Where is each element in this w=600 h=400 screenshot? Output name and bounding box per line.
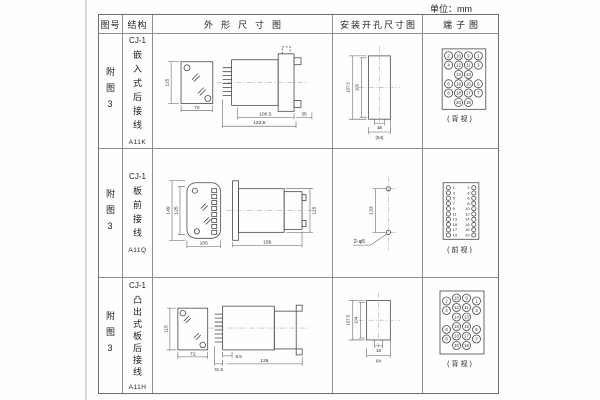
svg-text:12: 12 <box>454 305 459 310</box>
page-edge-line <box>85 0 87 400</box>
model-label: CJ-1 <box>129 281 146 290</box>
structure-cell-row1: CJ-1 嵌入式后接线 A11K <box>123 34 153 149</box>
svg-text:8: 8 <box>445 337 448 342</box>
svg-text:10: 10 <box>456 53 461 58</box>
dimension-label: 105 <box>200 240 209 246</box>
outline-drawing-row1: 115 72 100.5 35 <box>153 34 333 149</box>
install-drawing-svg-row2: 133 2-φ5 <box>333 149 422 277</box>
dimension-label: 125 <box>174 206 180 215</box>
front-view-dimensions: 115 72 <box>165 62 213 113</box>
dimension-label: 104 <box>354 316 359 324</box>
svg-text:5: 5 <box>475 327 478 332</box>
svg-text:11: 11 <box>453 211 457 216</box>
outline-drawing-svg-row2: 149 125 105 156 115 <box>153 149 332 277</box>
dimension-label: 72 <box>190 351 196 357</box>
dimension-label: 105 <box>355 83 360 91</box>
svg-text:4: 4 <box>445 308 448 313</box>
header-fig-no: 图号 <box>99 15 123 34</box>
svg-text:7: 7 <box>477 91 480 96</box>
svg-text:13: 13 <box>466 72 471 77</box>
install-drawing-svg-row1: 107.5 105 16 (64) <box>333 34 422 148</box>
install-drawing-row3: 107.5 104 16 64 <box>333 278 423 393</box>
front-view <box>178 308 208 350</box>
dimension-label: 133 <box>369 206 375 214</box>
terminal-circles: 2109141211314136161558181772019 <box>445 52 483 107</box>
fig-no-cell-row2: 附图3 <box>99 149 123 278</box>
svg-text:19: 19 <box>466 100 471 105</box>
svg-text:3: 3 <box>453 190 456 195</box>
dimension-label: 156 <box>263 239 272 245</box>
svg-text:3: 3 <box>475 308 478 313</box>
hole-size-label: 2-φ5 <box>354 239 365 245</box>
fig-no-cell-row3: 附图3 <box>99 278 123 393</box>
terminal-circles: 1357911131517192468101214161820 <box>446 185 476 237</box>
svg-text:12: 12 <box>456 63 461 68</box>
dimension-label: (64) <box>376 135 384 140</box>
svg-text:13: 13 <box>453 217 458 222</box>
view-label: (背视) <box>423 114 498 124</box>
svg-text:9: 9 <box>465 296 468 301</box>
svg-text:14: 14 <box>454 315 459 320</box>
svg-text:2: 2 <box>467 185 469 190</box>
front-view <box>187 183 221 239</box>
svg-text:20: 20 <box>456 100 461 105</box>
front-view <box>181 62 213 104</box>
svg-text:6: 6 <box>467 196 470 201</box>
header-install-label: 安装开孔尺寸图 <box>340 18 417 31</box>
header-outline-label: 外形尺寸图 <box>204 18 289 31</box>
svg-text:16: 16 <box>456 81 461 86</box>
install-drawing-row2: 133 2-φ5 <box>333 149 423 278</box>
model-code: A11H <box>129 384 147 391</box>
svg-text:18: 18 <box>456 91 461 96</box>
svg-text:8: 8 <box>447 91 450 96</box>
structure-desc: 凸出式板后接线 <box>131 295 144 379</box>
terminal-drawing-svg-row3: 2109141211314136161558181772019 <box>423 278 498 393</box>
svg-text:1: 1 <box>475 299 478 304</box>
fig-no-text: 附图3 <box>104 67 117 116</box>
side-view-dimensions: 100.5 35 122.5 <box>223 99 312 128</box>
side-view <box>209 305 310 355</box>
side-view <box>227 181 316 241</box>
dimension-label: 100.5 <box>259 111 272 117</box>
terminal-drawing-row1: 2109141211314136161558181772019 (背视) <box>423 34 498 149</box>
header-structure: 结构 <box>123 15 153 34</box>
svg-text:5: 5 <box>453 196 456 201</box>
structure-desc: 嵌入式后接线 <box>131 50 144 134</box>
svg-text:10: 10 <box>454 296 459 301</box>
view-label: (前视) <box>423 245 498 255</box>
spec-table: 图号 结构 外形尺寸图 安装开孔尺寸图 端子图 附图3 CJ-1 嵌入式后接线 … <box>98 14 499 394</box>
svg-text:16: 16 <box>465 222 470 227</box>
dimension-label: 72 <box>194 105 200 111</box>
model-code: A11Q <box>128 247 146 254</box>
dimension-label: 31.5 <box>214 367 223 372</box>
header-install: 安装开孔尺寸图 <box>333 15 423 34</box>
dimension-label: 9.5 <box>236 354 243 359</box>
terminal-drawing-svg-row2: 1357911131517192468101214161820 <box>423 149 498 277</box>
model-code: A11K <box>129 139 146 146</box>
dimension-label: 126 <box>260 358 269 364</box>
fig-no-cell-row1: 附图3 <box>99 34 123 149</box>
structure-cell-row3: CJ-1 凸出式板后接线 A11H <box>123 278 153 393</box>
dimension-label: 16 <box>376 348 381 353</box>
dimension-label: 64 <box>376 359 381 364</box>
svg-text:7: 7 <box>475 337 478 342</box>
svg-text:9: 9 <box>453 206 456 211</box>
svg-text:2: 2 <box>445 299 448 304</box>
svg-text:15: 15 <box>453 222 458 227</box>
svg-text:12: 12 <box>465 211 469 216</box>
header-fig-no-label: 图号 <box>100 18 120 31</box>
dimension-label: 115 <box>165 78 171 86</box>
svg-text:3: 3 <box>477 63 480 68</box>
front-view-dimensions: 115 72 <box>163 308 207 359</box>
model-label: CJ-1 <box>129 36 146 45</box>
outline-drawing-row2: 149 125 105 156 115 <box>153 149 333 278</box>
header-outline: 外形尺寸图 <box>153 15 333 34</box>
hole-layout <box>379 177 397 250</box>
svg-text:20: 20 <box>454 343 459 348</box>
svg-text:1: 1 <box>453 185 455 190</box>
structure-desc: 板前接线 <box>131 186 144 242</box>
svg-text:19: 19 <box>453 232 458 237</box>
svg-text:6: 6 <box>445 327 448 332</box>
svg-text:20: 20 <box>465 232 470 237</box>
side-view-dimensions: 156 115 <box>233 189 318 248</box>
svg-text:6: 6 <box>447 81 450 86</box>
svg-text:14: 14 <box>465 217 470 222</box>
svg-text:17: 17 <box>453 227 457 232</box>
svg-text:16: 16 <box>454 324 459 329</box>
outline-drawing-row3: 115 72 9.5 31.5 126 <box>153 278 333 393</box>
terminal-drawing-row2: 1357911131517192468101214161820 (前视) <box>423 149 498 278</box>
dimension-label: 115 <box>163 325 169 333</box>
svg-text:8: 8 <box>467 201 470 206</box>
svg-text:11: 11 <box>464 305 469 310</box>
hole-dimensions: 133 2-φ5 <box>353 189 387 245</box>
install-drawing-svg-row3: 107.5 104 16 64 <box>333 278 422 393</box>
header-terminal-label: 端子图 <box>443 18 482 31</box>
svg-text:11: 11 <box>466 63 471 68</box>
svg-text:15: 15 <box>464 324 469 329</box>
svg-text:14: 14 <box>456 72 461 77</box>
install-drawing-row1: 107.5 105 16 (64) <box>333 34 423 149</box>
cutout-outline <box>359 46 401 129</box>
cutout-dimensions: 107.5 104 16 64 <box>345 300 390 363</box>
dimension-label: 115 <box>311 206 317 214</box>
structure-cell-row2: CJ-1 板前接线 A11Q <box>123 149 153 278</box>
fig-no-text: 附图3 <box>104 189 117 238</box>
cutout-outline <box>359 292 401 347</box>
outline-drawing-svg-row3: 115 72 9.5 31.5 126 <box>153 278 332 393</box>
fig-no-text: 附图3 <box>104 311 117 360</box>
view-label: (背视) <box>423 359 498 369</box>
svg-text:19: 19 <box>464 343 469 348</box>
svg-text:10: 10 <box>465 206 470 211</box>
header-terminal: 端子图 <box>423 15 498 34</box>
svg-text:17: 17 <box>466 91 471 96</box>
svg-text:18: 18 <box>454 334 459 339</box>
svg-text:2: 2 <box>447 53 450 58</box>
svg-text:9: 9 <box>467 53 470 58</box>
dimension-label: 107.5 <box>345 314 350 325</box>
svg-text:5: 5 <box>477 81 480 86</box>
spec-sheet-page: 单位：mm 图号 结构 外形尺寸图 安装开孔尺寸图 端子图 附图3 CJ-1 嵌… <box>0 0 600 400</box>
svg-text:4: 4 <box>467 190 470 195</box>
svg-text:15: 15 <box>466 81 471 86</box>
dimension-label: 107.5 <box>345 82 350 93</box>
terminal-drawing-svg-row1: 2109141211314136161558181772019 <box>423 34 498 148</box>
svg-text:17: 17 <box>464 334 469 339</box>
terminal-drawing-row3: 2109141211314136161558181772019 (背视) <box>423 278 498 393</box>
svg-text:4: 4 <box>447 63 450 68</box>
dimension-label: 149 <box>166 206 172 215</box>
dimension-label: 35 <box>301 111 307 117</box>
cutout-dimensions: 107.5 105 16 (64) <box>345 56 390 140</box>
terminal-circles: 2109141211314136161558181772019 <box>443 294 481 350</box>
svg-text:13: 13 <box>464 315 469 320</box>
dimension-label: 16 <box>377 125 382 130</box>
outline-drawing-svg-row1: 115 72 100.5 35 <box>153 34 332 148</box>
dimension-label: 122.5 <box>253 120 266 126</box>
header-structure-label: 结构 <box>127 18 147 31</box>
svg-text:18: 18 <box>465 227 470 232</box>
svg-text:7: 7 <box>453 201 455 206</box>
svg-text:1: 1 <box>477 53 480 58</box>
side-view <box>217 47 308 111</box>
model-label: CJ-1 <box>129 172 146 181</box>
